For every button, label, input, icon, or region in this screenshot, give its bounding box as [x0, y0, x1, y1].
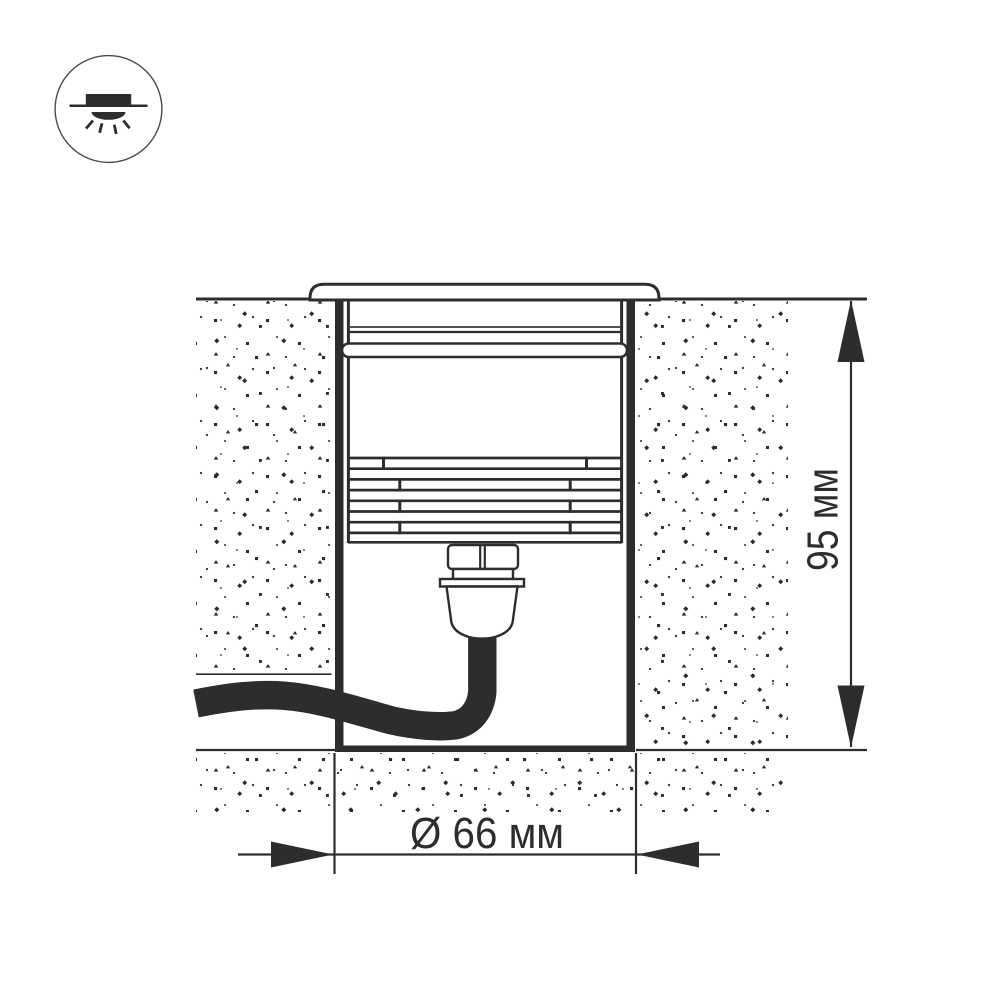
svg-text:Ø 66 мм: Ø 66 мм: [410, 809, 564, 858]
svg-text:95 мм: 95 мм: [799, 468, 848, 571]
